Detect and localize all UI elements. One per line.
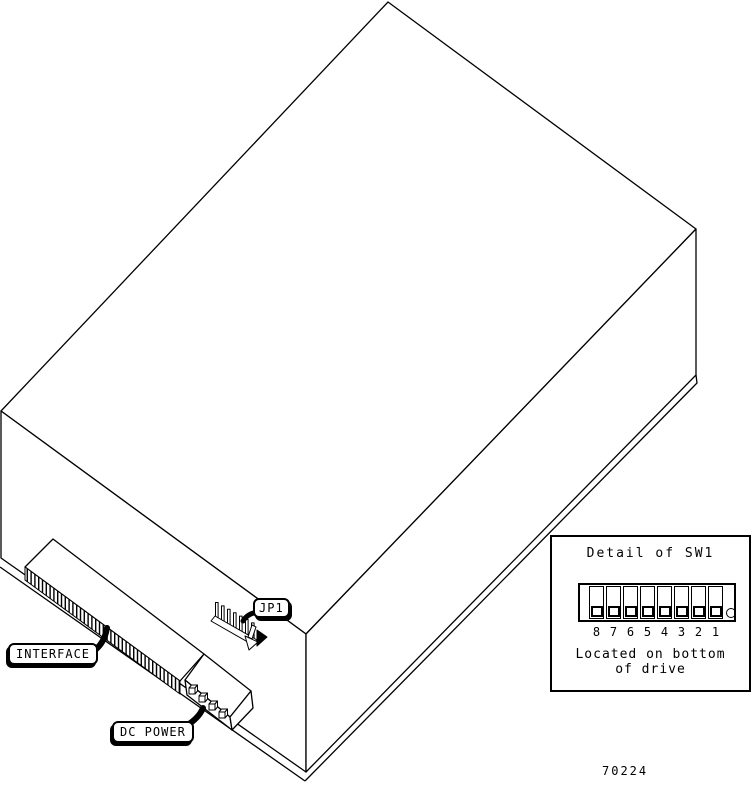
dip-actuator-1 [710, 606, 722, 617]
dip-number: 1 [708, 625, 723, 639]
dip-actuator-3 [676, 606, 688, 617]
dip-index-hole [726, 608, 736, 618]
dip-switch-7 [606, 586, 621, 619]
dip-number: 3 [674, 625, 689, 639]
dip-switch-4 [657, 586, 672, 619]
dip-actuator-5 [642, 606, 654, 617]
dc-power-label: DC POWER [112, 721, 194, 743]
sw1-detail-title: Detail of SW1 [552, 546, 749, 561]
figure-number: 70224 [602, 764, 648, 778]
dip-number: 7 [606, 625, 621, 639]
dip-switch-body [578, 583, 736, 622]
dip-switch-3 [674, 586, 689, 619]
dip-switch-5 [640, 586, 655, 619]
diagram-page: INTERFACE DC POWER JP1 Detail of SW1 8 7… [0, 0, 755, 787]
dip-switch-8 [589, 586, 604, 619]
sw1-location-note-line1: Located on bottom [552, 647, 749, 662]
sw1-location-note: Located on bottom of drive [552, 647, 749, 677]
dip-switch-2 [691, 586, 706, 619]
dip-number: 2 [691, 625, 706, 639]
dip-actuator-7 [608, 606, 620, 617]
sw1-detail-box: Detail of SW1 8 7 6 5 4 3 2 1 Located on… [550, 535, 751, 692]
sw1-location-note-line2: of drive [552, 662, 749, 677]
jp1-label: JP1 [253, 598, 290, 618]
interface-label: INTERFACE [8, 643, 98, 665]
dip-number: 4 [657, 625, 672, 639]
dip-switch-numbers: 8 7 6 5 4 3 2 1 [589, 625, 723, 639]
dip-actuator-6 [625, 606, 637, 617]
dip-switch-6 [623, 586, 638, 619]
dip-number: 5 [640, 625, 655, 639]
dip-actuator-8 [591, 606, 603, 617]
dip-number: 8 [589, 625, 604, 639]
dip-switch-1 [708, 586, 723, 619]
dip-number: 6 [623, 625, 638, 639]
dip-actuator-4 [659, 606, 671, 617]
dip-actuator-2 [693, 606, 705, 617]
